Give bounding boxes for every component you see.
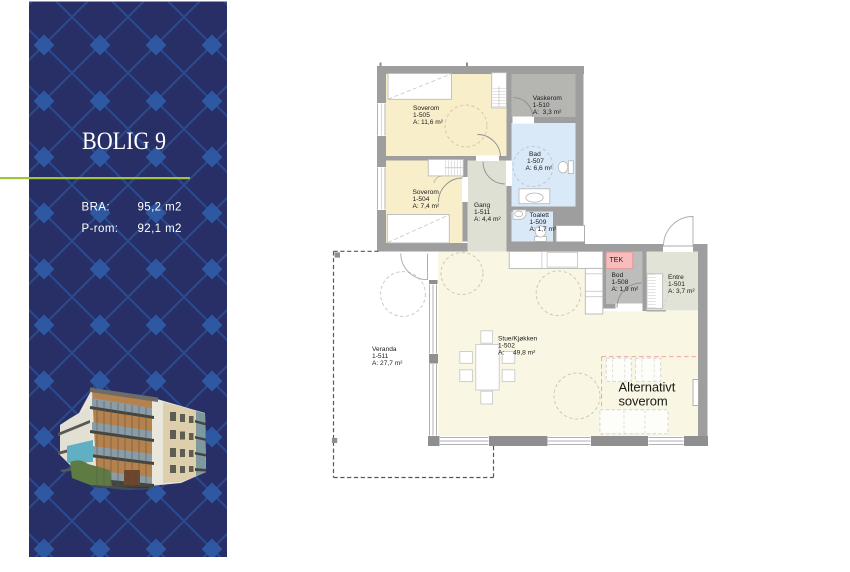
svg-text:Toalett: Toalett (530, 212, 550, 219)
svg-text:95,2 m2: 95,2 m2 (138, 202, 182, 214)
svg-text:Bod: Bod (612, 272, 624, 279)
svg-text:Soverom: Soverom (413, 189, 440, 196)
svg-text:1-505: 1-505 (413, 112, 430, 119)
svg-text:A: 1,9 m²: A: 1,9 m² (612, 286, 640, 293)
svg-text:A: 7,4 m²: A: 7,4 m² (413, 203, 441, 210)
svg-text:49,8 m²: 49,8 m² (513, 350, 536, 357)
svg-text:A: 3,7 m²: A: 3,7 m² (668, 288, 696, 295)
svg-text:A: 4,4 m²: A: 4,4 m² (474, 216, 502, 223)
svg-text:BOLIG 9: BOLIG 9 (82, 128, 166, 155)
svg-text:Gang: Gang (474, 202, 490, 209)
svg-text:1-511: 1-511 (372, 353, 389, 360)
svg-text:A: 6,6 m²: A: 6,6 m² (526, 165, 554, 172)
svg-text:92,1 m2: 92,1 m2 (138, 223, 182, 235)
svg-text:1-502: 1-502 (498, 343, 515, 350)
svg-text:A: 3,3 m²: A: 3,3 m² (533, 109, 562, 116)
svg-text:A: 27,7 m²: A: 27,7 m² (372, 360, 403, 367)
svg-text:1-508: 1-508 (612, 279, 629, 286)
svg-text:A: 1,7 m²: A: 1,7 m² (530, 226, 558, 233)
svg-text:1-507: 1-507 (527, 158, 544, 165)
svg-text:1-510: 1-510 (533, 102, 550, 109)
svg-text:Veranda: Veranda (372, 346, 397, 353)
svg-text:Stue/Kjøkken: Stue/Kjøkken (498, 336, 538, 343)
svg-text:A: 11,6 m²: A: 11,6 m² (413, 119, 444, 126)
svg-text:BRA:: BRA: (82, 202, 110, 214)
svg-text:Vaskerom: Vaskerom (533, 95, 563, 102)
svg-text:Soverom: Soverom (413, 105, 440, 112)
svg-text:Entre: Entre (668, 274, 684, 281)
svg-text:Alternativt: Alternativt (619, 380, 676, 395)
svg-text:A:: A: (498, 350, 504, 357)
svg-text:1-501: 1-501 (668, 281, 685, 288)
svg-text:1-509: 1-509 (530, 219, 547, 226)
svg-text:TEK: TEK (610, 257, 624, 264)
svg-text:P-rom:: P-rom: (82, 223, 119, 235)
svg-text:1-511: 1-511 (474, 209, 491, 216)
svg-text:Bad: Bad (529, 151, 541, 158)
svg-text:1-504: 1-504 (413, 196, 430, 203)
svg-text:soverom: soverom (619, 394, 668, 409)
